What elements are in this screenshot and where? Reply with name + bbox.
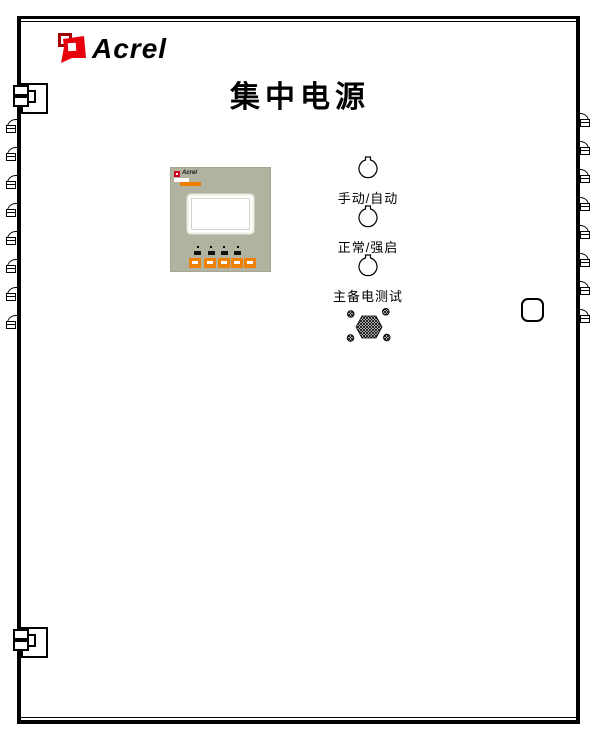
cable-clip <box>5 146 18 161</box>
panel-button[interactable] <box>244 258 256 268</box>
switch-manual-auto: 手动/自动 <box>322 155 414 207</box>
acrel-logo-icon <box>58 33 88 65</box>
buzzer-speaker-icon <box>346 306 392 344</box>
cable-clip <box>578 140 591 155</box>
panel-button[interactable] <box>218 258 230 268</box>
cable-clip <box>5 258 18 273</box>
indicator-dot <box>210 246 212 248</box>
panel-button[interactable] <box>189 258 201 268</box>
indicator-led <box>208 251 215 255</box>
panel-logo-icon <box>174 171 180 177</box>
cable-clip <box>5 230 18 245</box>
switch-normal-force-start: 正常/强启 <box>322 204 414 256</box>
lcd-screen <box>187 194 254 234</box>
indicator-dot <box>237 246 239 248</box>
indicator-dot <box>223 246 225 248</box>
cable-clip <box>578 224 591 239</box>
indicator-led <box>234 251 241 255</box>
cable-clip <box>5 286 18 301</box>
cable-clip <box>578 280 591 295</box>
cable-clip <box>578 112 591 127</box>
rotary-knob-icon[interactable] <box>357 204 379 228</box>
rotary-knob-icon[interactable] <box>357 155 379 179</box>
panel-logo-bar-orange <box>180 182 201 186</box>
lcd-screen-inner <box>191 198 250 230</box>
cable-clip <box>5 202 18 217</box>
door-hinge-bottom <box>12 626 48 661</box>
cable-clip <box>5 314 18 329</box>
cable-clip <box>578 196 591 211</box>
switch-label: 主备电测试 <box>322 286 414 305</box>
cabinet-border-bottom <box>17 717 580 724</box>
door-lock[interactable] <box>521 298 544 322</box>
brand-name: Acrel <box>92 33 167 65</box>
display-panel: Acrel <box>170 167 271 272</box>
panel-button[interactable] <box>204 258 216 268</box>
cabinet-front-view: { "brand": { "logo_text": "Acrel" }, "ti… <box>0 0 605 732</box>
cabinet-border-top <box>17 16 580 22</box>
cable-clip <box>578 308 591 323</box>
cable-clip <box>5 118 18 133</box>
switch-main-backup-test: 主备电测试 <box>322 253 414 305</box>
door-hinge-top <box>12 82 48 117</box>
cable-clip <box>578 252 591 267</box>
panel-button[interactable] <box>231 258 243 268</box>
indicator-led <box>194 251 201 255</box>
cable-clip <box>5 174 18 189</box>
rotary-knob-icon[interactable] <box>357 253 379 277</box>
page-title: 集中电源 <box>180 72 420 116</box>
panel-logo-text: Acrel <box>182 170 197 176</box>
indicator-led <box>221 251 228 255</box>
indicator-dot <box>197 246 199 248</box>
cable-clip <box>578 168 591 183</box>
